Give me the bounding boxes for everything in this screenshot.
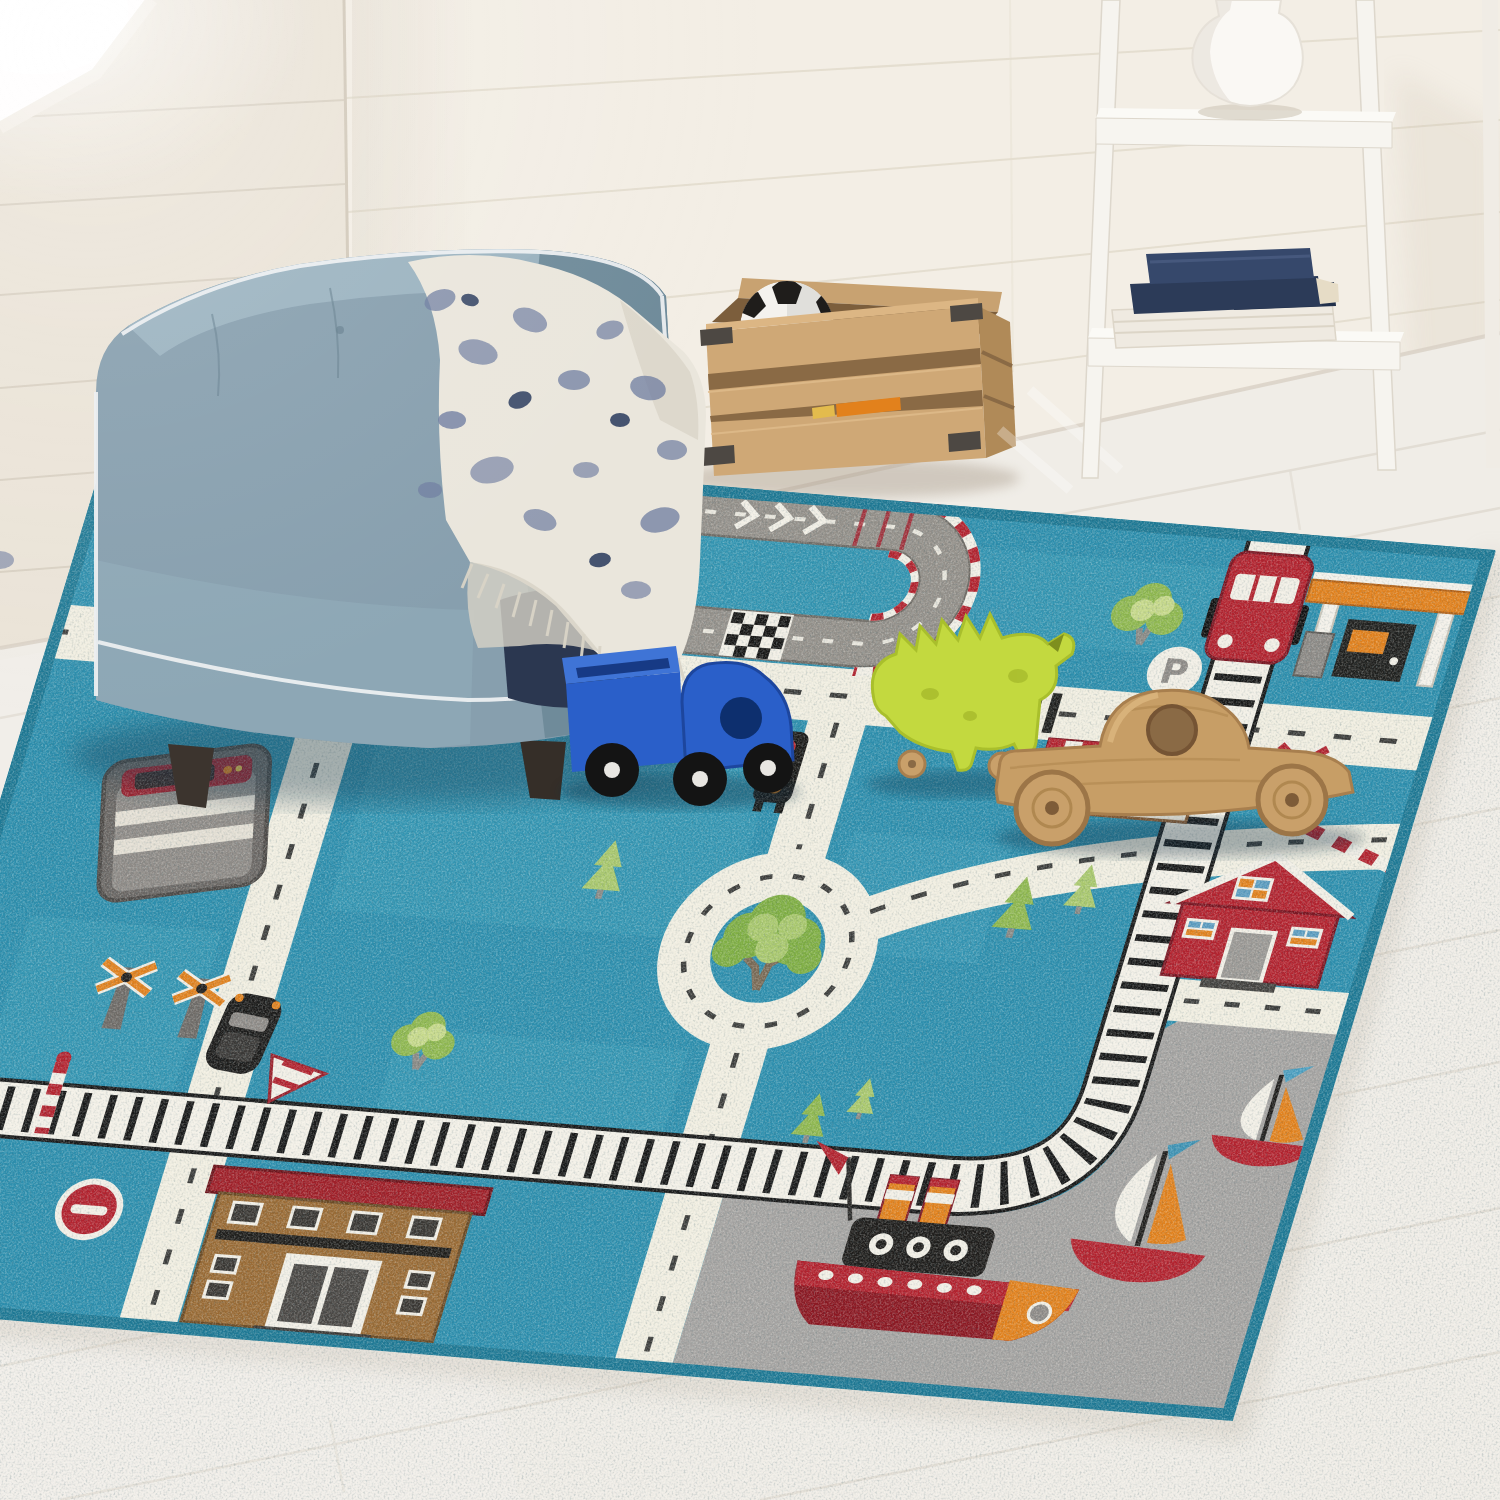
- playroom-photo: Photograph of a children's playroom corn…: [0, 0, 1500, 1500]
- scene-canvas: Photograph of a children's playroom corn…: [0, 0, 1500, 1500]
- ambient-light-overlay: [0, 0, 1500, 1500]
